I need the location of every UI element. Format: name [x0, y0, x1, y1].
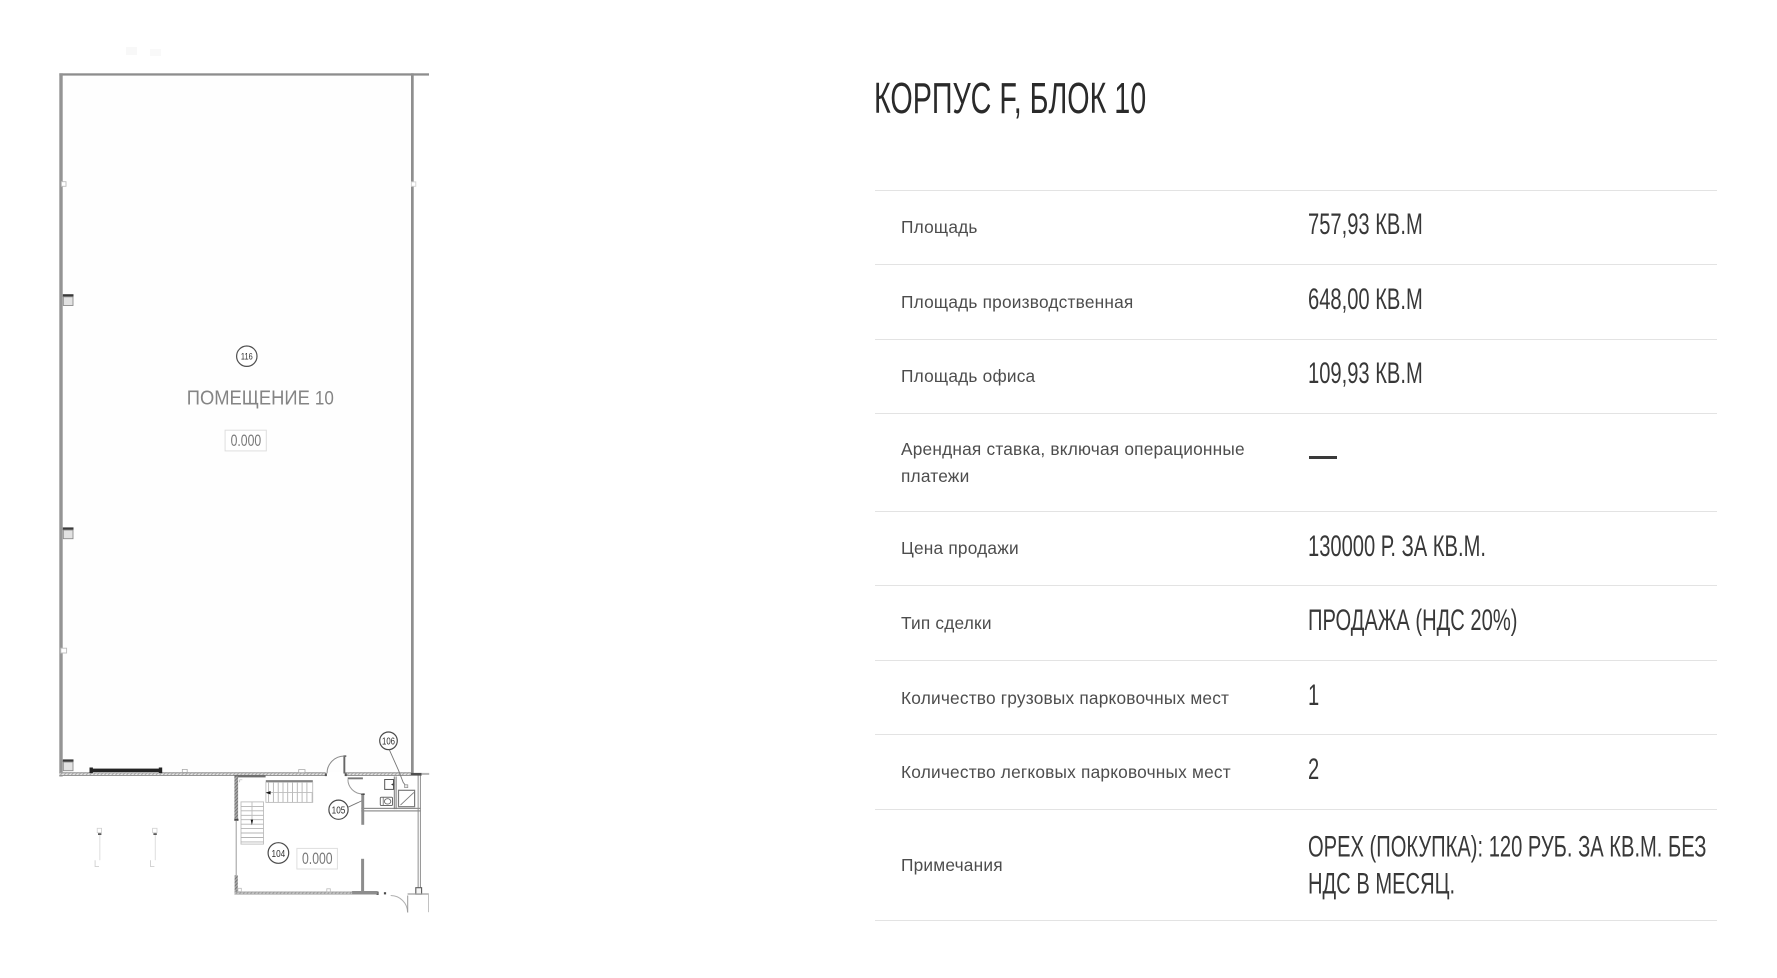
- svg-text:106: 106: [382, 735, 395, 746]
- svg-text:0.000: 0.000: [302, 851, 333, 869]
- svg-text:116: 116: [241, 351, 253, 362]
- svg-text:105: 105: [332, 803, 346, 815]
- svg-text:104: 104: [272, 847, 286, 859]
- svg-text:ПОМЕЩЕНИЕ 10: ПОМЕЩЕНИЕ 10: [187, 387, 334, 410]
- svg-text:0.000: 0.000: [231, 433, 262, 451]
